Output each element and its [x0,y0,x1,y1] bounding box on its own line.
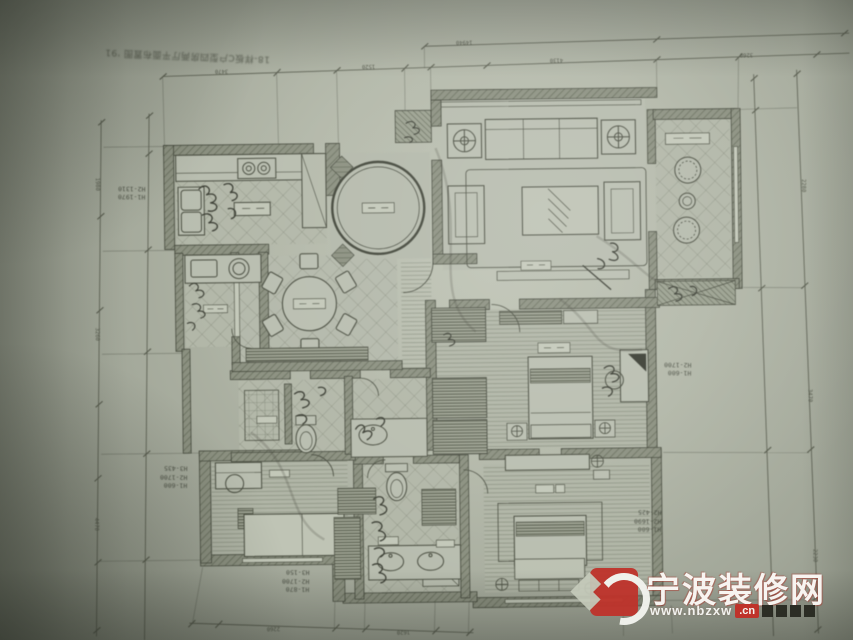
watermark-block [776,605,787,617]
lamp-symbol [591,455,603,467]
dim-label: 2260 [267,625,280,631]
annotation-line: H1-870 [282,585,310,594]
annotation-line: H1-600 [634,525,662,534]
annotation-line: H3-435 [160,464,188,473]
height-annotation: H1-870 H2-1700 H3-150 [282,568,310,594]
dim-label: 14940 [456,39,473,45]
watermark-url-text: www.nbzxw [650,603,732,618]
height-annotation: H1-1970 H2-1310 [118,184,146,201]
annotation-line: H2-1310 [118,184,146,193]
dim-label: 3470 [807,389,813,402]
dim-label: 1620 [397,629,410,635]
dim-label: 2280 [800,179,806,192]
photographed-floor-plan: 14940 3470 1520 4130 3260 1980 3260 4470… [0,0,853,640]
watermark-block [790,605,801,617]
dim-label: 3260 [94,328,100,341]
watermark-url-suffix: .cn [735,604,759,618]
annotation-line: H1-600 [160,481,188,490]
height-annotation: H1-600 H2-1700 H3-435 [160,464,188,490]
annotation-line: H2-1700 [664,360,692,369]
watermark-url: www.nbzxw .cn [650,603,815,618]
watermark: 宁波装修网 www.nbzxw .cn [566,560,853,630]
photo-layer: 14940 3470 1520 4130 3260 1980 3260 4470… [0,0,853,640]
dim-label: 3260 [740,51,753,57]
hall-cabinets [431,308,487,455]
annotation-line: H2-1700 [282,576,310,585]
floor-plan-drawing: 14940 3470 1520 4130 3260 1980 3260 4470… [0,0,853,640]
annotation-line: H2-425 [634,508,662,517]
dim-label: 1520 [362,63,375,69]
annotation-line: H2-1690 [634,516,662,525]
dim-label: 1980 [94,178,100,191]
watermark-block [762,605,773,617]
annotation-line: H1-600 [664,368,692,377]
height-annotation: H1-600 H2-1690 H2-425 [634,508,662,534]
annotation-line: H1-1970 [118,192,146,201]
dim-label: 4470 [93,518,99,531]
watermark-logo-icon [590,568,638,616]
watermark-block [804,605,815,617]
annotation-line: H3-150 [282,568,310,577]
dim-label: 3470 [215,68,228,74]
annotation-line: H2-1700 [160,472,188,481]
height-annotation: H1-600 H2-1700 [664,360,692,377]
dim-label: 4130 [550,57,563,63]
